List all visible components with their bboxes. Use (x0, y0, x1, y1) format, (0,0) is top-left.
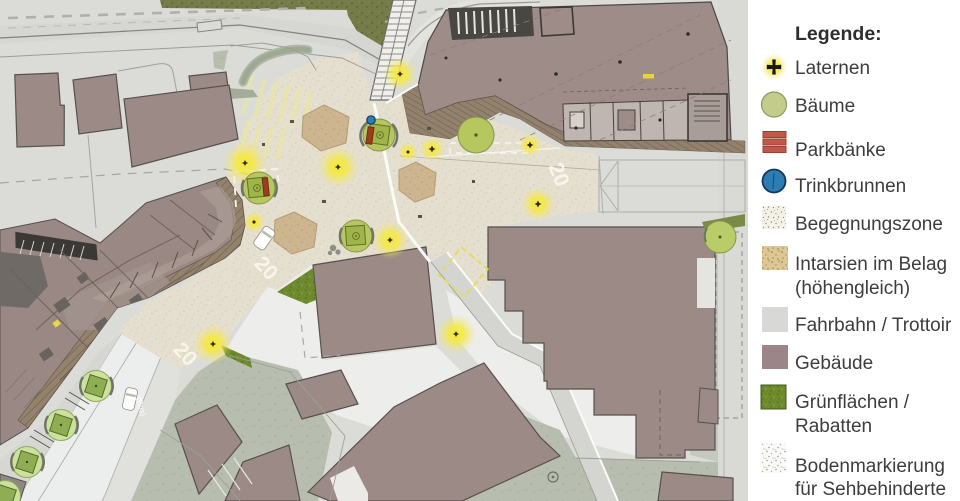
svg-text:Gebäude: Gebäude (795, 353, 873, 374)
svg-text:Laternen: Laternen (795, 58, 870, 79)
svg-text:Legende:: Legende: (795, 23, 882, 45)
svg-text:Bodenmarkierung: Bodenmarkierung (795, 456, 945, 477)
svg-text:Fahrbahn / Trottoir: Fahrbahn / Trottoir (795, 315, 952, 336)
svg-text:Rabatten: Rabatten (795, 416, 872, 437)
svg-text:für Sehbehinderte: für Sehbehinderte (795, 479, 946, 500)
svg-text:Trinkbrunnen: Trinkbrunnen (795, 176, 906, 197)
svg-text:Grünflächen /: Grünflächen / (795, 392, 910, 413)
svg-text:Bäume: Bäume (795, 96, 855, 117)
svg-text:(höhengleich): (höhengleich) (795, 278, 910, 299)
svg-text:Intarsien im Belag: Intarsien im Belag (795, 254, 947, 275)
svg-text:Begegnungszone: Begegnungszone (795, 214, 943, 235)
svg-text:Parkbänke: Parkbänke (795, 140, 886, 161)
